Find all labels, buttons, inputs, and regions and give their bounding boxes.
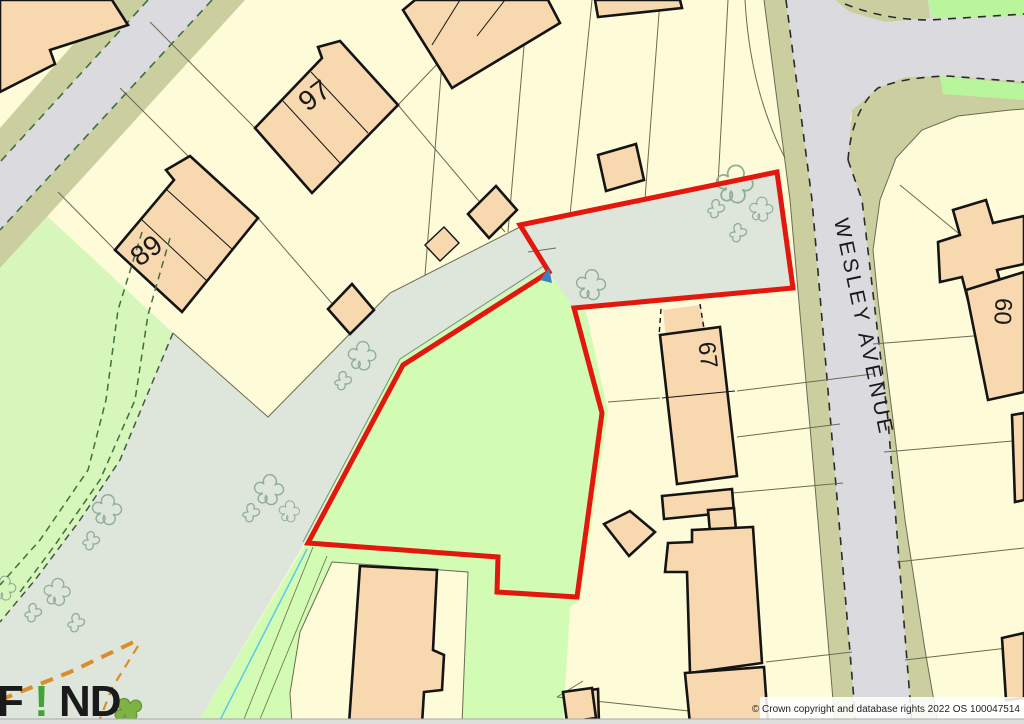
find-logo-part2: ND: [59, 677, 121, 724]
find-logo-accent: !: [34, 677, 48, 724]
bottom-edge-strip: [0, 719, 1024, 724]
house-number-60: 60: [988, 297, 1016, 325]
find-logo: F ! ND: [0, 677, 121, 724]
find-logo-part1: F: [0, 677, 23, 724]
house-number-67: 67: [692, 340, 722, 370]
map-viewport: 97 89 67 60 WESLEY AVENUE © Crown copyri…: [0, 0, 1024, 724]
map-canvas: 97 89 67 60 WESLEY AVENUE © Crown copyri…: [0, 0, 1024, 724]
copyright-attribution: © Crown copyright and database rights 20…: [752, 704, 1021, 715]
